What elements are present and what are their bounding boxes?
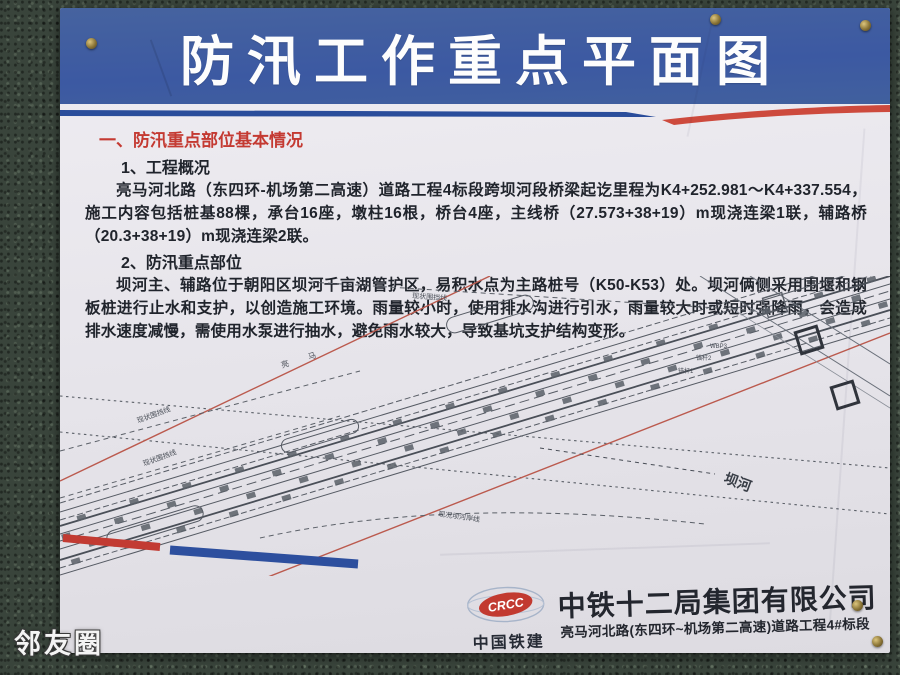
- title-band: 防汛工作重点平面图: [60, 8, 890, 104]
- river-bank-line: [60, 432, 890, 514]
- screw-icon: [86, 38, 97, 49]
- anchor-label: WBP3: [710, 344, 728, 350]
- fence-label: 现状围挡线: [136, 404, 172, 424]
- pier-row: [60, 288, 890, 538]
- pier-row: [60, 276, 890, 524]
- red-planning-line: [250, 333, 890, 576]
- subheading-2: 2、防汛重点部位: [121, 249, 867, 273]
- section-heading: 一、防汛重点部位基本情况: [99, 126, 867, 151]
- river-bank-line: [60, 396, 890, 468]
- site-plan-diagram: 现状围挡线 现状围挡线 现状围挡线 现况坝河岸线 亮 马 坝河 WBP3 锚杆2…: [60, 276, 890, 576]
- road-name-label: 亮 马: [280, 347, 326, 370]
- decor-stripe-blue: [60, 110, 656, 117]
- screw-icon: [872, 636, 883, 647]
- photo-scene: { "watermark": "邻友圈", "poster": { "title…: [0, 0, 900, 675]
- river-label: 坝河: [722, 470, 754, 495]
- fence-line: [60, 371, 360, 451]
- flood-plan-poster: 防汛工作重点平面图 一、防汛重点部位基本情况 1、工程概况 亮马河北路（东四环-…: [60, 8, 890, 653]
- screw-icon: [852, 600, 863, 611]
- road-line: [60, 325, 890, 575]
- fence-label: 现状围挡线: [142, 447, 178, 467]
- screw-icon: [710, 14, 721, 25]
- pier-row: [60, 316, 890, 566]
- poster-title: 防汛工作重点平面图: [167, 17, 783, 96]
- road-line: [60, 299, 890, 549]
- fence-line: [310, 282, 780, 312]
- bank-curve: [260, 513, 705, 538]
- anchor-label: 锚杆1: [678, 367, 694, 375]
- logo-caption: 中国铁建: [460, 627, 557, 653]
- footer: CRCC 中国铁建 中铁十二局集团有限公司 亮马河北路(东四环~机场第二高速)道…: [457, 570, 879, 653]
- bottom-stripe-red: [63, 538, 160, 547]
- paragraph-project-overview: 亮马河北路（东四环-机场第二高速）道路工程4标段跨坝河段桥梁起讫里程为K4+25…: [85, 179, 867, 248]
- screw-icon: [860, 20, 871, 31]
- fence-label: 现状围挡线: [412, 291, 448, 302]
- watermark: 邻友圈: [14, 622, 104, 661]
- decor-stripes: [60, 104, 890, 128]
- subheading-1: 1、工程概况: [121, 154, 867, 178]
- road-line: [60, 291, 890, 541]
- median-island: [445, 293, 536, 335]
- decor-stripe-red: [662, 105, 890, 125]
- anchor-label: 锚杆2: [696, 354, 712, 362]
- bank-label: 现况坝河岸线: [438, 509, 481, 524]
- fence-line: [60, 416, 340, 498]
- river-leader-line: [540, 448, 715, 474]
